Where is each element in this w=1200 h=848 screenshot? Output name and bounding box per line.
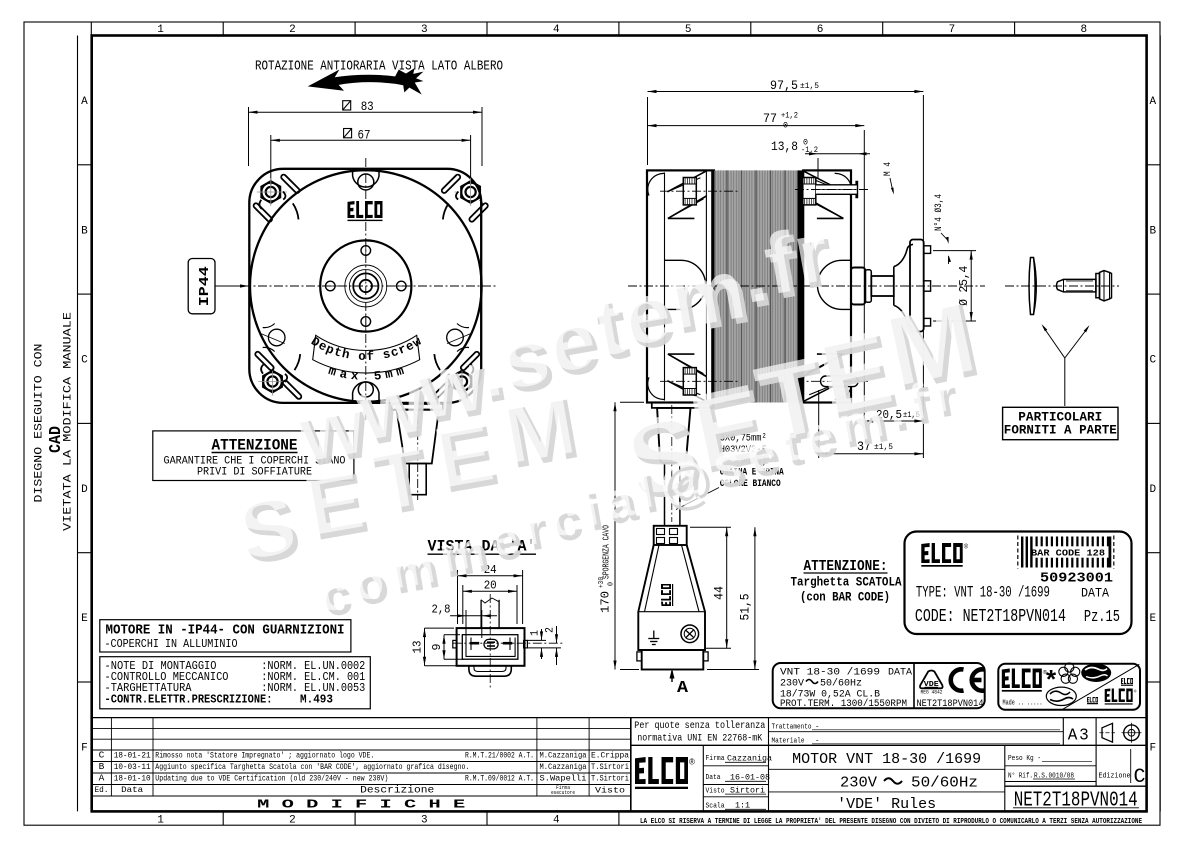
svg-text:+30: +30 <box>598 577 606 588</box>
svg-text:230V: 230V <box>780 679 804 690</box>
svg-text:VIETATA LA MODIFICA MANUALE: VIETATA LA MODIFICA MANUALE <box>63 312 75 531</box>
svg-text:C: C <box>1149 355 1156 367</box>
svg-text:D: D <box>1149 484 1156 496</box>
svg-text:(con BAR CODE): (con BAR CODE) <box>800 589 890 604</box>
svg-text:T.Sirtori: T.Sirtori <box>591 762 629 772</box>
svg-text:M.493: M.493 <box>300 693 333 706</box>
svg-text:PARTICOLARI: PARTICOLARI <box>1018 411 1102 425</box>
svg-text:Targhetta SCATOLA: Targhetta SCATOLA <box>791 574 902 589</box>
svg-text:50/60Hz: 50/60Hz <box>820 678 862 690</box>
svg-text:E.Crippa: E.Crippa <box>591 751 629 761</box>
svg-text:-1,2: -1,2 <box>801 145 818 155</box>
svg-text:Data: Data <box>706 774 721 782</box>
svg-text:M 4: M 4 <box>882 162 894 176</box>
svg-text:MOTOR VNT 18-30 /1699: MOTOR VNT 18-30 /1699 <box>792 752 981 768</box>
svg-text:50923001: 50923001 <box>1040 572 1113 587</box>
svg-text:170: 170 <box>599 591 613 613</box>
svg-text:6: 6 <box>817 24 824 36</box>
svg-text:44: 44 <box>713 586 727 600</box>
svg-text:10-03-11: 10-03-11 <box>114 762 151 772</box>
svg-text:BAR CODE 128: BAR CODE 128 <box>1031 548 1105 559</box>
svg-text:Edizione: Edizione <box>1099 773 1131 781</box>
svg-text:M.Cazzaniga: M.Cazzaniga <box>540 762 587 772</box>
svg-text:18-01-10: 18-01-10 <box>114 774 151 784</box>
svg-text:Scala: Scala <box>706 803 725 811</box>
svg-text:esecutore: esecutore <box>551 790 575 796</box>
svg-text:Per quote senza tolleranza: Per quote senza tolleranza <box>634 720 765 732</box>
svg-text:TYPE: VNT 18-30 /1699: TYPE: VNT 18-30 /1699 <box>916 584 1050 602</box>
svg-text:VNT 18-30 /1699: VNT 18-30 /1699 <box>780 667 880 679</box>
svg-text:51,5: 51,5 <box>739 594 753 621</box>
svg-text:B: B <box>1149 225 1156 237</box>
svg-text:IP44: IP44 <box>197 266 213 306</box>
svg-text:230V: 230V <box>840 776 877 792</box>
svg-text:0: 0 <box>783 121 788 131</box>
svg-text:13,8: 13,8 <box>771 139 798 154</box>
svg-text:2: 2 <box>289 814 296 826</box>
svg-text:-COPERCHI IN ALLUMINIO: -COPERCHI IN ALLUMINIO <box>105 638 238 651</box>
svg-text:B: B <box>81 225 88 237</box>
svg-text:13: 13 <box>411 641 425 654</box>
svg-text:3: 3 <box>421 814 428 826</box>
svg-text:2: 2 <box>289 24 296 36</box>
svg-text:Visto: Visto <box>595 786 625 796</box>
svg-text:Descrizione: Descrizione <box>360 785 434 797</box>
svg-text:T.Sirtori: T.Sirtori <box>591 774 629 784</box>
svg-text:E: E <box>1149 613 1156 625</box>
svg-text:F: F <box>1149 742 1156 754</box>
svg-text:®: ® <box>1134 688 1137 693</box>
svg-text:CODE: NET2T18PVN014: CODE: NET2T18PVN014 <box>915 606 1066 627</box>
svg-text:PROT.TERM. 1300/1550RPM: PROT.TERM. 1300/1550RPM <box>780 698 907 710</box>
svg-text:9: 9 <box>430 644 444 651</box>
svg-text:S.Wapelli: S.Wapelli <box>540 774 587 784</box>
svg-text:Firma: Firma <box>706 755 725 763</box>
svg-text:1: 1 <box>157 24 164 36</box>
svg-text:83: 83 <box>361 99 374 114</box>
svg-text:2: 2 <box>545 627 557 633</box>
svg-text:5: 5 <box>685 24 692 36</box>
svg-text:Materiale: Materiale <box>772 737 805 745</box>
svg-text:50/60Hz: 50/60Hz <box>911 776 978 792</box>
svg-text:A: A <box>677 679 689 698</box>
svg-text:77: 77 <box>763 111 777 126</box>
svg-text:N°4 Ø3,4: N°4 Ø3,4 <box>933 194 945 231</box>
svg-text:Pz.15: Pz.15 <box>1084 608 1120 627</box>
svg-text:Trattamento: Trattamento <box>772 723 812 731</box>
svg-text:7: 7 <box>949 24 956 36</box>
svg-text:+1,2: +1,2 <box>781 111 798 121</box>
svg-text:±1,5: ±1,5 <box>800 81 819 91</box>
svg-text:B: B <box>99 761 105 772</box>
svg-text:A: A <box>81 96 88 108</box>
svg-text:18-01-21: 18-01-21 <box>114 751 151 761</box>
svg-text:Rimosso nota 'Statore Impregna: Rimosso nota 'Statore Impregnato' ; aggi… <box>155 751 374 761</box>
svg-text:FORNITI A PARTE: FORNITI A PARTE <box>1004 424 1117 438</box>
svg-text:normativa UNI EN 22768-mK: normativa UNI EN 22768-mK <box>637 733 763 745</box>
svg-text:MOTORE IN -IP44- CON GUARNIZIO: MOTORE IN -IP44- CON GUARNIZIONI <box>106 623 345 639</box>
svg-text:M O D I F I C H E: M O D I F I C H E <box>257 797 465 811</box>
svg-text:R.M.T.21/0002 A.T.: R.M.T.21/0002 A.T. <box>465 751 534 761</box>
svg-text:Ed.: Ed. <box>95 785 109 795</box>
svg-text:8: 8 <box>1081 24 1088 36</box>
svg-text:F: F <box>81 742 88 754</box>
svg-text:ROTAZIONE ANTIORARIA VISTA LAT: ROTAZIONE ANTIORARIA VISTA LATO ALBERO <box>255 60 503 75</box>
svg-text:C: C <box>81 355 88 367</box>
svg-text:REG 4842: REG 4842 <box>921 690 943 696</box>
svg-text:2,8: 2,8 <box>432 603 451 617</box>
svg-text:1: 1 <box>530 630 542 636</box>
svg-text:NET2T18PVN014: NET2T18PVN014 <box>917 698 984 710</box>
svg-text:A3: A3 <box>1068 727 1091 746</box>
svg-text:67: 67 <box>358 128 371 143</box>
svg-text:®: ® <box>964 544 969 551</box>
svg-text:DISEGNO ESEGUITO CON: DISEGNO ESEGUITO CON <box>34 344 46 503</box>
svg-text:Updating due to VDE Certificat: Updating due to VDE Certification (old 2… <box>155 774 388 784</box>
svg-text:VDE: VDE <box>924 681 939 689</box>
svg-text:DATA: DATA <box>888 668 912 679</box>
svg-text:4: 4 <box>553 814 560 826</box>
svg-text:M.Cazzaniga: M.Cazzaniga <box>540 751 587 761</box>
svg-text:Aggiunto specifica Targhetta S: Aggiunto specifica Targhetta Scatola con… <box>155 762 469 772</box>
svg-text:LA ELCO SI RISERVA A TERMINE D: LA ELCO SI RISERVA A TERMINE DI LEGGE LA… <box>640 818 1142 826</box>
svg-text:Peso Kg -: Peso Kg - <box>1008 755 1041 763</box>
svg-text:PRIVI DI SOFFIATURE: PRIVI DI SOFFIATURE <box>197 467 312 479</box>
svg-text:NET2T18PVN014: NET2T18PVN014 <box>1014 789 1138 812</box>
svg-text:DATA: DATA <box>1081 586 1109 601</box>
svg-text:Visto: Visto <box>706 788 725 796</box>
svg-text:1: 1 <box>157 814 164 826</box>
svg-text:'VDE' Rules: 'VDE' Rules <box>837 797 936 813</box>
svg-text:A: A <box>99 773 105 784</box>
svg-text:D: D <box>81 484 88 496</box>
svg-text:C: C <box>99 750 105 761</box>
svg-text:0: 0 <box>608 582 616 586</box>
svg-text:R.M.T.09/0012 A.T.: R.M.T.09/0012 A.T. <box>465 774 534 784</box>
svg-text:E: E <box>81 613 88 625</box>
svg-text:®: ® <box>689 758 695 767</box>
svg-text:Made .. .....: Made .. ..... <box>1003 700 1043 708</box>
svg-text:Data: Data <box>121 785 143 795</box>
svg-text:3: 3 <box>421 24 428 36</box>
svg-text:97,5: 97,5 <box>770 78 798 93</box>
svg-text:A: A <box>1149 96 1156 108</box>
svg-text:4: 4 <box>553 24 560 36</box>
svg-text:@: @ <box>655 449 713 513</box>
svg-text:N° Rif.: N° Rif. <box>1008 771 1033 780</box>
svg-text:-CONTR.ELETTR.PRESCRIZIONE:: -CONTR.ELETTR.PRESCRIZIONE: <box>105 693 273 706</box>
